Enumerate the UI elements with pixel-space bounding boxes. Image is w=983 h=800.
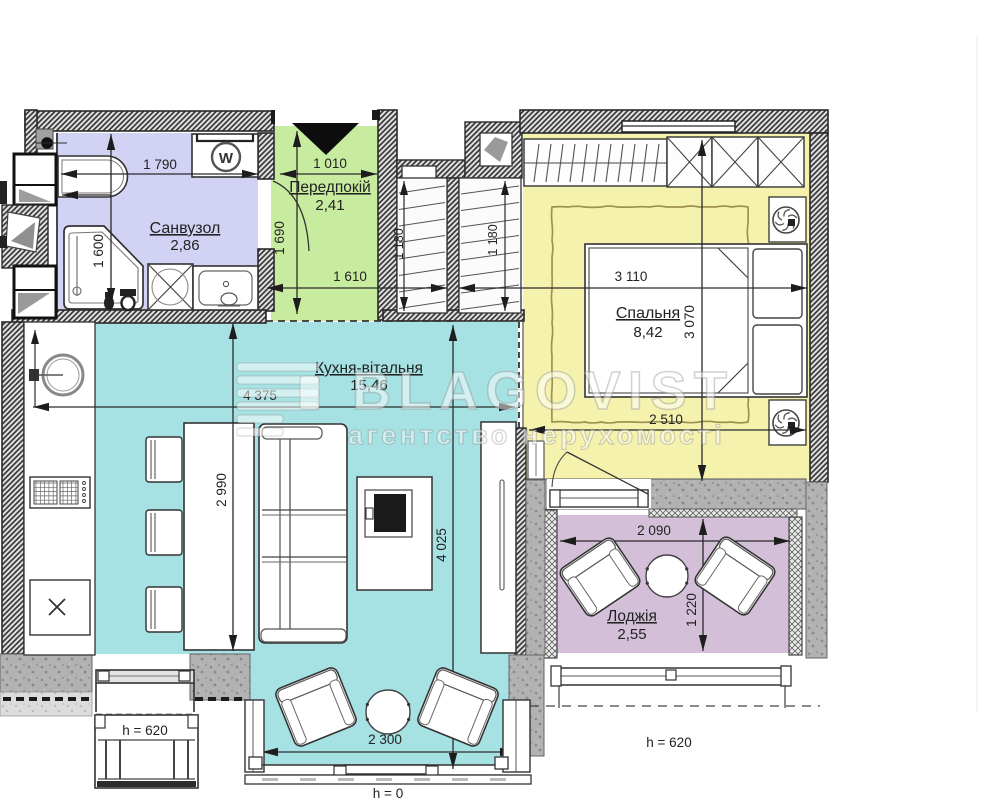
svg-text:2 990: 2 990 — [214, 473, 229, 507]
svg-text:1 600: 1 600 — [91, 234, 106, 268]
svg-text:1 180: 1 180 — [486, 224, 500, 255]
svg-text:агентство нерухомості: агентство нерухомості — [348, 420, 725, 450]
svg-text:BLAGOVIST: BLAGOVIST — [352, 361, 735, 421]
svg-text:1 690: 1 690 — [272, 221, 287, 255]
svg-text:1 790: 1 790 — [143, 157, 177, 172]
svg-text:h = 0: h = 0 — [373, 786, 403, 800]
svg-text:h = 620: h = 620 — [122, 723, 167, 738]
svg-text:3 110: 3 110 — [615, 269, 648, 284]
svg-text:2 300: 2 300 — [368, 732, 402, 747]
svg-text:1 010: 1 010 — [313, 156, 347, 171]
svg-text:W: W — [219, 150, 234, 167]
svg-text:2,41: 2,41 — [315, 197, 344, 214]
svg-text:3 070: 3 070 — [682, 305, 697, 339]
svg-text:h = 620: h = 620 — [646, 735, 691, 750]
svg-text:1 220: 1 220 — [684, 593, 699, 627]
svg-text:8,42: 8,42 — [633, 324, 662, 341]
svg-text:2,55: 2,55 — [617, 626, 646, 643]
svg-text:1 610: 1 610 — [333, 269, 367, 284]
svg-text:1 180: 1 180 — [392, 228, 406, 259]
svg-text:Спальня: Спальня — [616, 305, 680, 322]
svg-text:4 025: 4 025 — [434, 528, 449, 562]
svg-text:2 090: 2 090 — [637, 523, 671, 538]
svg-text:Санвузол: Санвузол — [150, 220, 221, 237]
svg-text:2,86: 2,86 — [170, 237, 199, 254]
svg-text:Передпокій: Передпокій — [289, 179, 371, 196]
svg-text:Лоджія: Лоджія — [607, 608, 657, 625]
